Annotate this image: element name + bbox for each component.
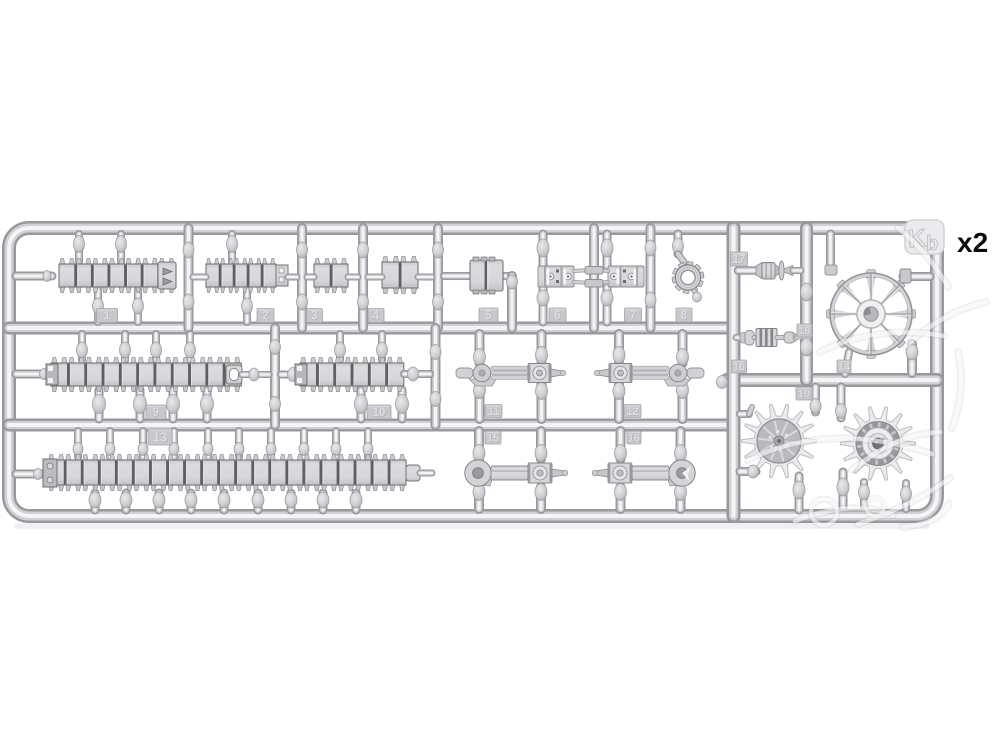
svg-text:3: 3: [311, 311, 317, 323]
svg-text:16: 16: [628, 432, 640, 444]
svg-text:19: 19: [798, 388, 810, 400]
svg-text:10: 10: [373, 407, 386, 419]
svg-text:13: 13: [153, 430, 168, 445]
svg-text:7: 7: [630, 310, 636, 322]
svg-text:16: 16: [733, 361, 745, 373]
svg-text:2: 2: [262, 311, 268, 323]
svg-text:x2: x2: [957, 227, 988, 258]
svg-text:17: 17: [733, 254, 746, 266]
svg-text:15: 15: [487, 432, 499, 444]
svg-text:4: 4: [373, 311, 380, 323]
svg-text:5: 5: [485, 310, 492, 322]
svg-text:9: 9: [153, 407, 159, 419]
svg-text:11: 11: [488, 406, 499, 418]
svg-text:6: 6: [554, 310, 560, 322]
svg-text:18: 18: [799, 325, 811, 337]
svg-text:14: 14: [838, 361, 850, 373]
svg-text:8: 8: [681, 310, 688, 322]
svg-text:1: 1: [104, 311, 111, 323]
svg-text:12: 12: [627, 406, 639, 418]
